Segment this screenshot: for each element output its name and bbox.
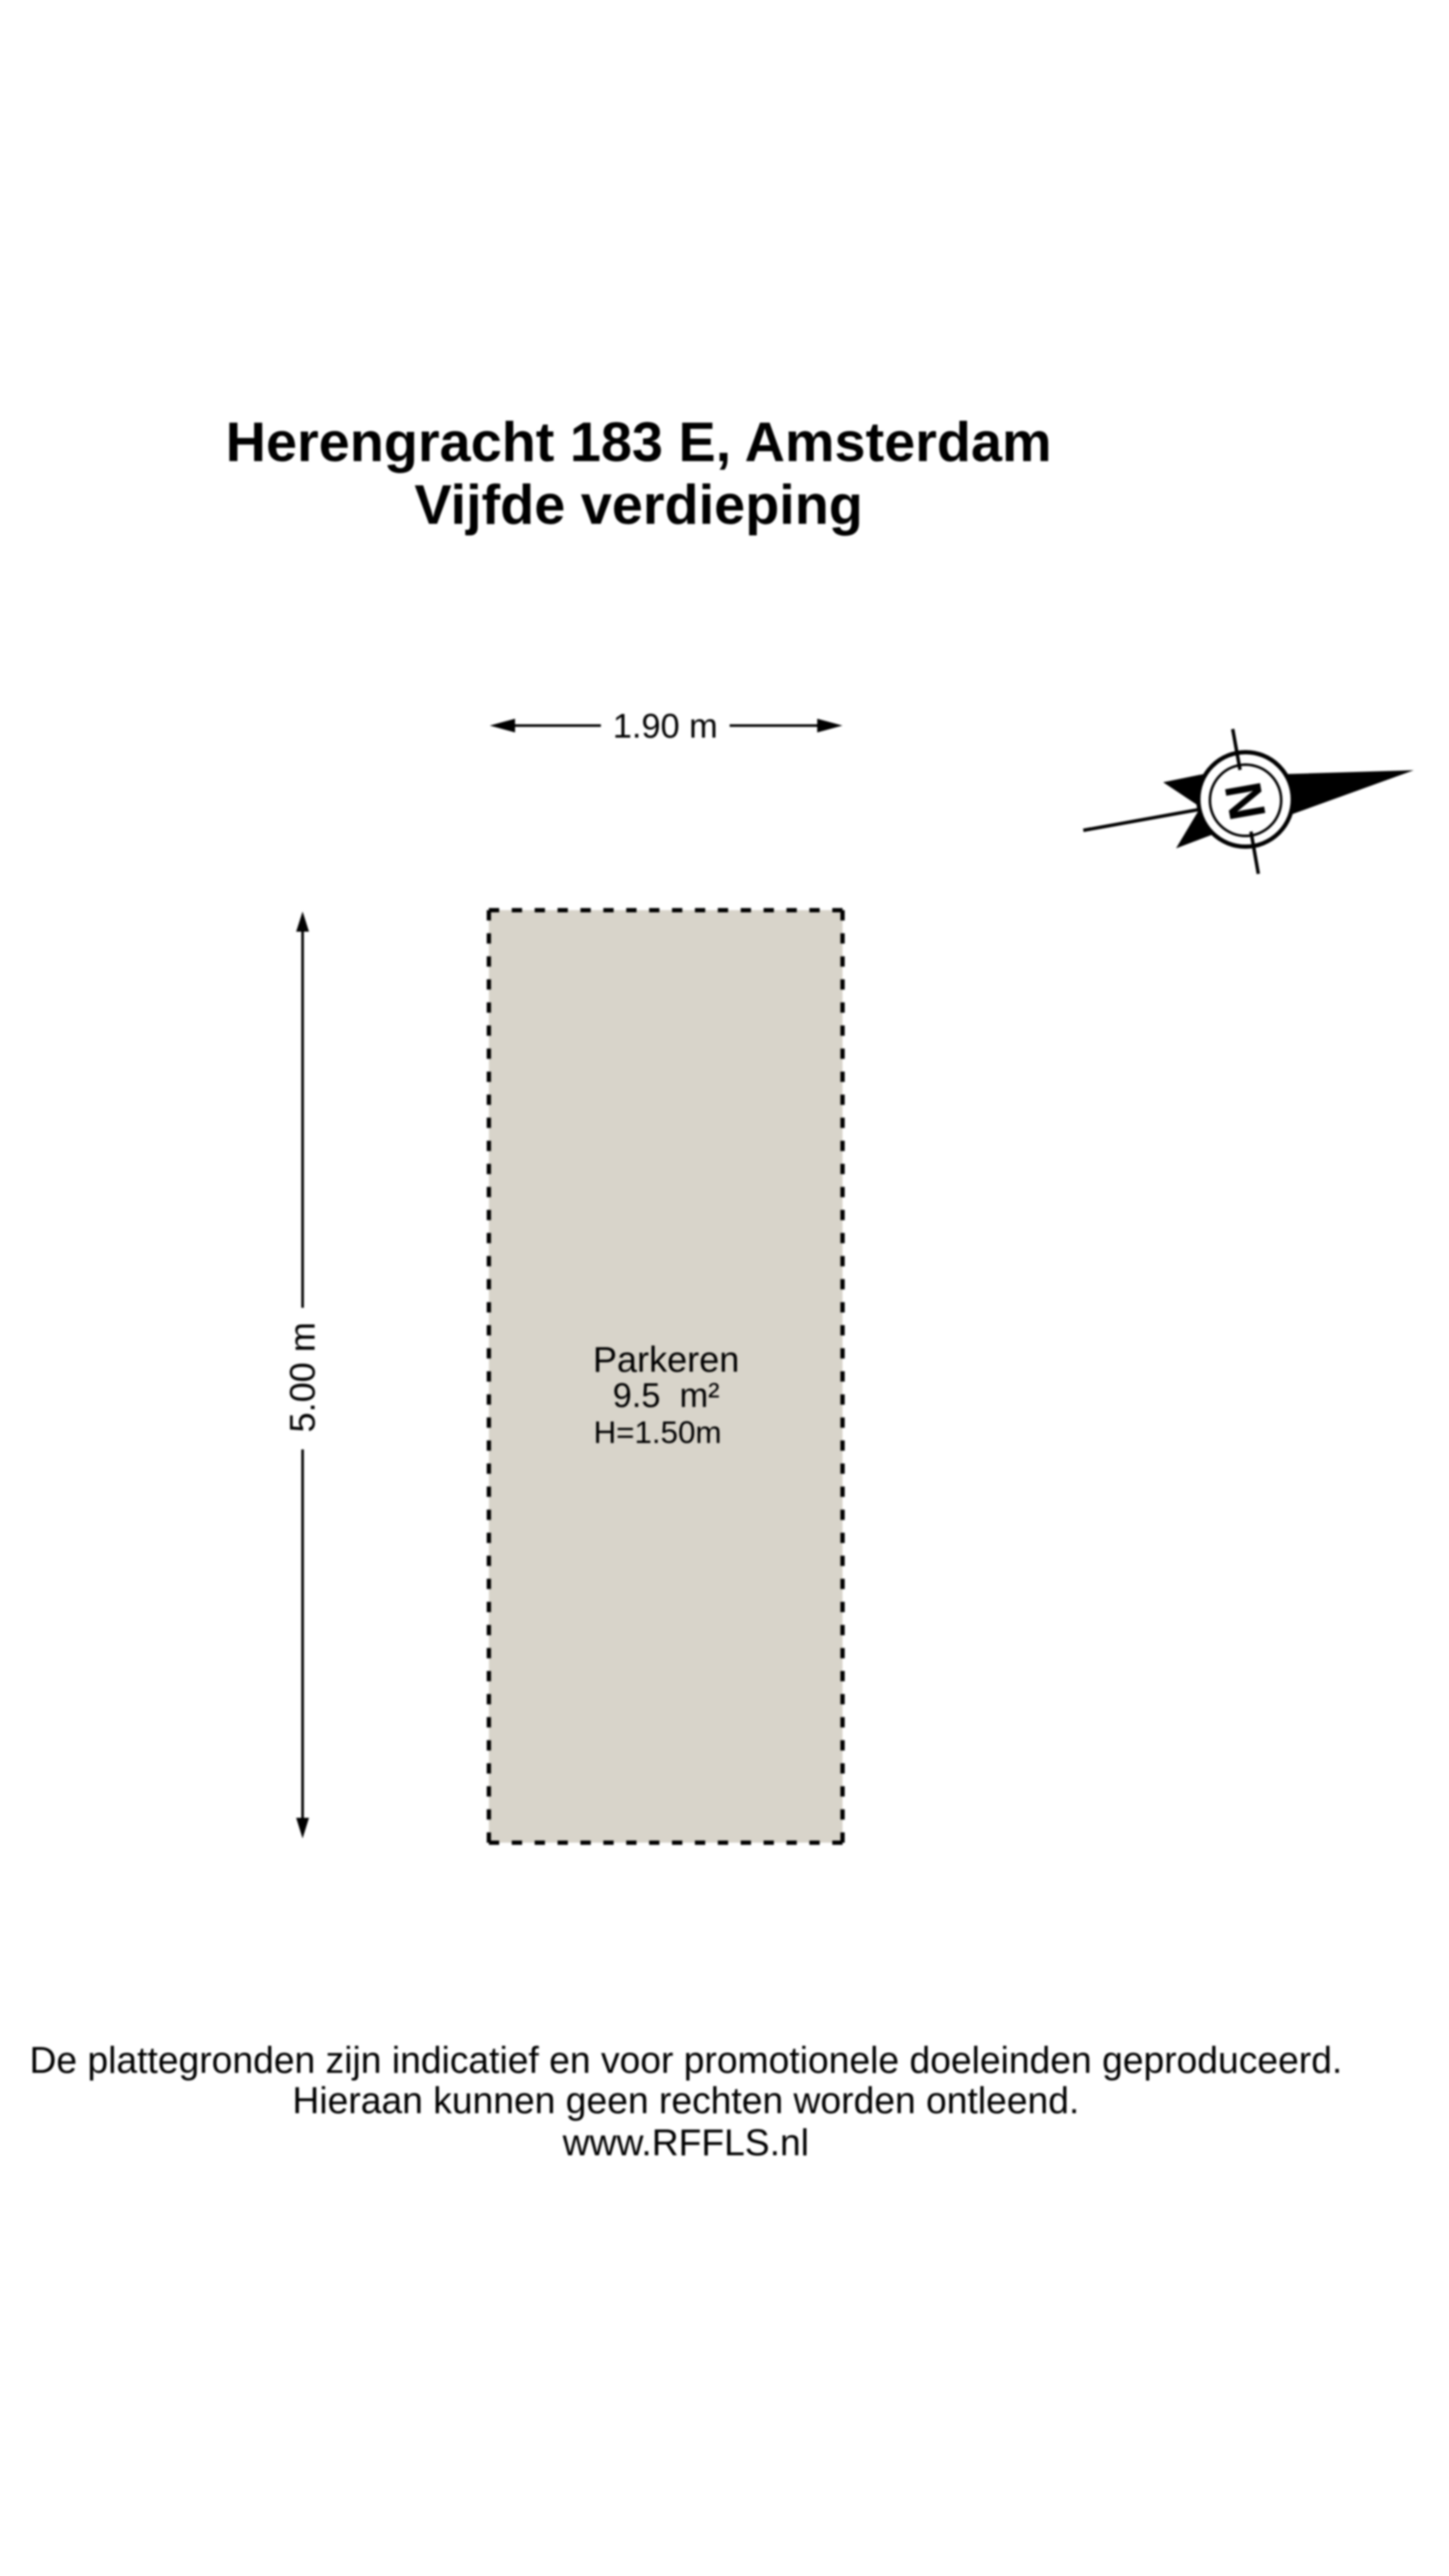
svg-text:Herengracht 183 E, Amsterdam: Herengracht 183 E, Amsterdam	[226, 410, 1052, 473]
svg-text:De plattegronden zijn indicati: De plattegronden zijn indicatief en voor…	[29, 2040, 1342, 2081]
svg-text:Hieraan kunnen geen rechten wo: Hieraan kunnen geen rechten worden ontle…	[293, 2081, 1080, 2122]
svg-text:Parkeren: Parkeren	[593, 1340, 739, 1380]
svg-text:www.RFFLS.nl: www.RFFLS.nl	[562, 2123, 809, 2164]
svg-text:Vijfde verdieping: Vijfde verdieping	[415, 473, 864, 536]
svg-text:H=1.50m: H=1.50m	[593, 1415, 721, 1450]
svg-text:1.90 m: 1.90 m	[613, 708, 718, 745]
svg-text:5.00 m: 5.00 m	[282, 1322, 323, 1432]
svg-text:9.5 m²: 9.5 m²	[613, 1377, 719, 1415]
